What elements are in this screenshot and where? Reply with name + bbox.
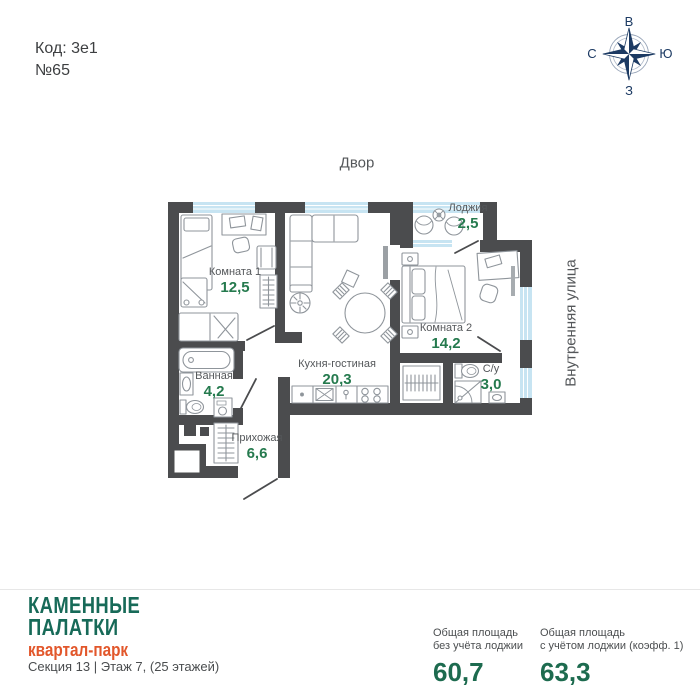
footer-divider (0, 589, 700, 590)
room-label-bathroom: Ванная 4,2 (195, 370, 233, 400)
section-floor-info: Секция 13 | Этаж 7, (25 этажей) (28, 659, 219, 674)
room-area: 14,2 (420, 336, 472, 352)
stat-label-line1: Общая площадь (540, 627, 683, 640)
stat-label-line2: с учётом лоджии (коэфф. 1) (540, 640, 683, 653)
label-inner-street: Внутренняя улица (563, 259, 580, 387)
stat-total-area: Общая площадь без учёта лоджии 60,7 (433, 627, 523, 688)
room-name: Лоджия (449, 202, 488, 215)
room-name: Ванная (195, 370, 233, 383)
compass-letter-south: Ю (659, 46, 672, 61)
stat-value: 60,7 (433, 657, 523, 688)
room-area: 6,6 (232, 446, 283, 462)
room-label-komnata1: Комната 1 12,5 (209, 266, 261, 296)
label-courtyard: Двор (340, 155, 375, 172)
room-area: 3,0 (481, 377, 502, 393)
room-label-komnata2: Комната 2 14,2 (420, 322, 472, 352)
floorplan-page: Код: 3е1 №65 В Ю З С (0, 0, 700, 700)
room-label-hallway: Прихожая 6,6 (232, 432, 283, 462)
room-name: Комната 1 (209, 266, 261, 279)
room-name: Прихожая (232, 432, 283, 445)
room-label-su: С/у 3,0 (481, 363, 502, 393)
room-area: 4,2 (195, 384, 233, 400)
room-name: Кухня-гостиная (298, 358, 376, 371)
stat-value: 63,3 (540, 657, 683, 688)
brand-logo: КАМЕННЫЕ ПАЛАТКИ квартал-парк (28, 594, 168, 660)
compass-letter-north: С (587, 46, 596, 61)
brand-subtitle: квартал-парк (28, 640, 147, 660)
room-name: Комната 2 (420, 322, 472, 335)
room-area: 2,5 (449, 216, 488, 232)
room-label-loggia: Лоджия 2,5 (449, 202, 488, 232)
compass-letter-east: В (625, 14, 634, 29)
room-name: С/у (481, 363, 502, 376)
stat-total-area-with-loggia: Общая площадь с учётом лоджии (коэфф. 1)… (540, 627, 683, 688)
brand-name-line2: ПАЛАТКИ (28, 616, 140, 638)
compass-letter-west: З (625, 83, 633, 98)
stat-label-line1: Общая площадь (433, 627, 523, 640)
stat-label-line2: без учёта лоджии (433, 640, 523, 653)
room-area: 20,3 (298, 372, 376, 388)
furniture-wardrobe-niche (403, 366, 440, 400)
room-label-kitchen: Кухня-гостиная 20,3 (298, 358, 376, 388)
room-area: 12,5 (209, 280, 261, 296)
brand-name-line1: КАМЕННЫЕ (28, 594, 140, 616)
compass-rose-icon: В Ю З С (587, 14, 672, 98)
